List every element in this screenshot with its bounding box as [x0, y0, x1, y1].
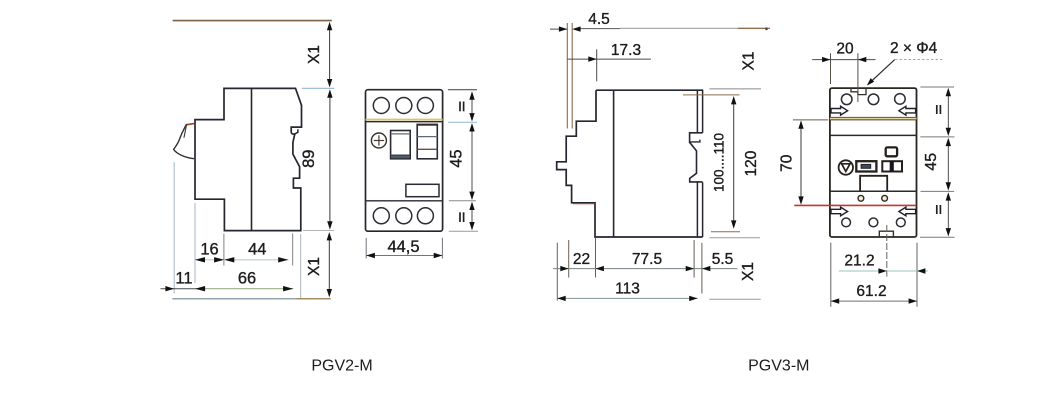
svg-text:70: 70: [779, 154, 796, 172]
svg-text:PGV3-M: PGV3-M: [748, 358, 809, 375]
svg-text:66: 66: [238, 270, 256, 288]
svg-text:4.5: 4.5: [588, 11, 610, 28]
svg-text:X1: X1: [740, 262, 757, 281]
svg-text:16: 16: [200, 241, 218, 259]
svg-text:2 × Φ4: 2 × Φ4: [890, 40, 938, 57]
svg-text:44: 44: [248, 241, 266, 259]
svg-text:45: 45: [923, 153, 940, 171]
svg-text:17.3: 17.3: [611, 42, 641, 59]
svg-text:X1: X1: [741, 52, 758, 71]
svg-text:X1: X1: [306, 45, 323, 64]
svg-text:20: 20: [836, 41, 854, 58]
svg-text:89: 89: [300, 150, 318, 168]
svg-text:44,5: 44,5: [387, 238, 419, 256]
svg-text:100....110: 100....110: [712, 133, 727, 192]
svg-text:5.5: 5.5: [712, 251, 734, 268]
svg-text:21.2: 21.2: [844, 253, 874, 270]
svg-text:61.2: 61.2: [856, 283, 886, 300]
svg-text:11: 11: [175, 270, 192, 288]
svg-text:120: 120: [743, 150, 760, 176]
svg-text:45: 45: [448, 149, 466, 167]
svg-text:113: 113: [615, 281, 640, 298]
svg-text:77.5: 77.5: [632, 251, 662, 268]
svg-text:PGV2-M: PGV2-M: [311, 358, 372, 375]
svg-text:X1: X1: [306, 257, 323, 276]
svg-text:22: 22: [573, 251, 590, 268]
